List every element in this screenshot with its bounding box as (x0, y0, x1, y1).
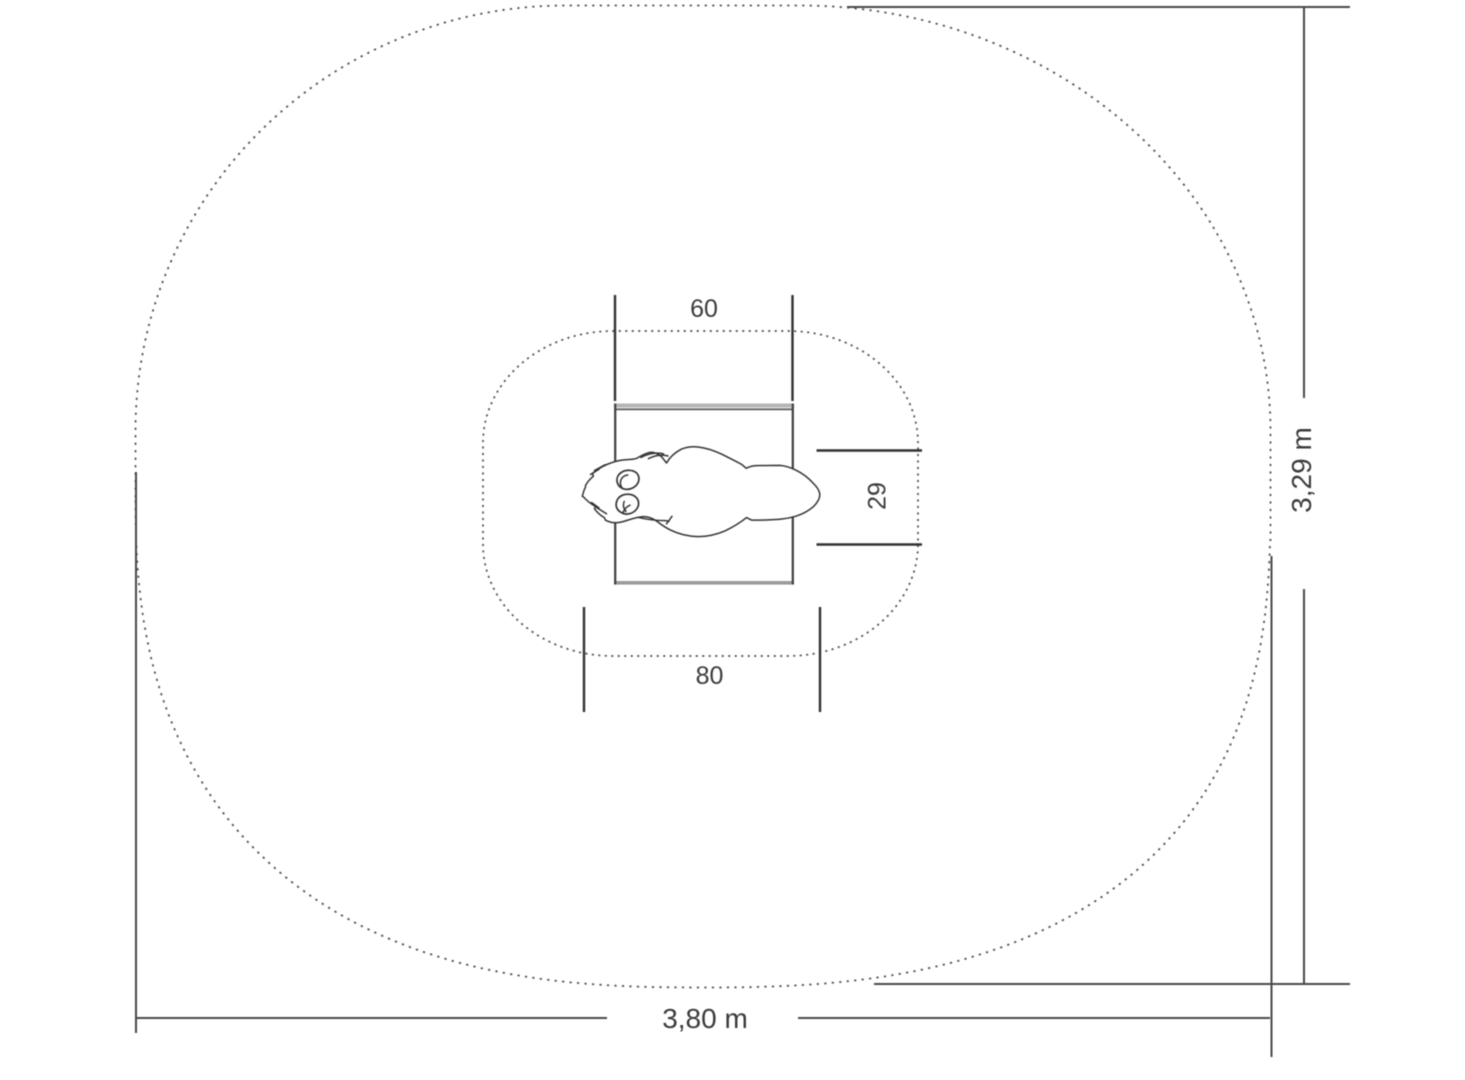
svg-text:3,29 m: 3,29 m (1286, 427, 1317, 513)
svg-text:80: 80 (696, 662, 724, 690)
svg-text:60: 60 (690, 295, 718, 323)
svg-text:29: 29 (864, 482, 892, 510)
svg-text:3,80 m: 3,80 m (662, 1003, 748, 1034)
